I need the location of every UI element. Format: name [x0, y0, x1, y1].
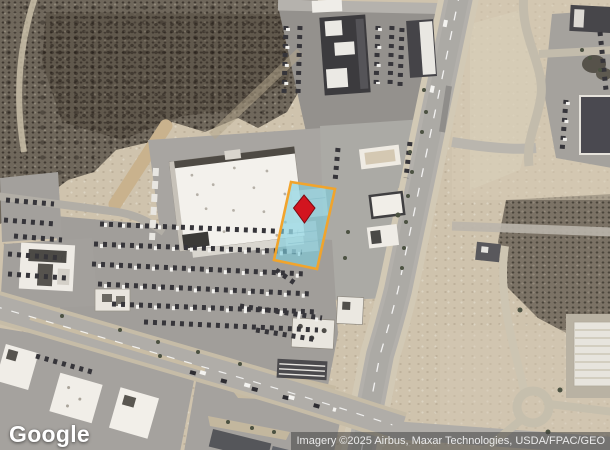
satellite-map-canvas[interactable]: Google Imagery ©2025 Airbus, Maxar Techn…	[0, 0, 610, 450]
imagery-attribution: Imagery ©2025 Airbus, Maxar Technologies…	[291, 432, 610, 450]
parcel-overlay-layer	[0, 0, 610, 450]
google-watermark[interactable]: Google	[9, 421, 90, 448]
